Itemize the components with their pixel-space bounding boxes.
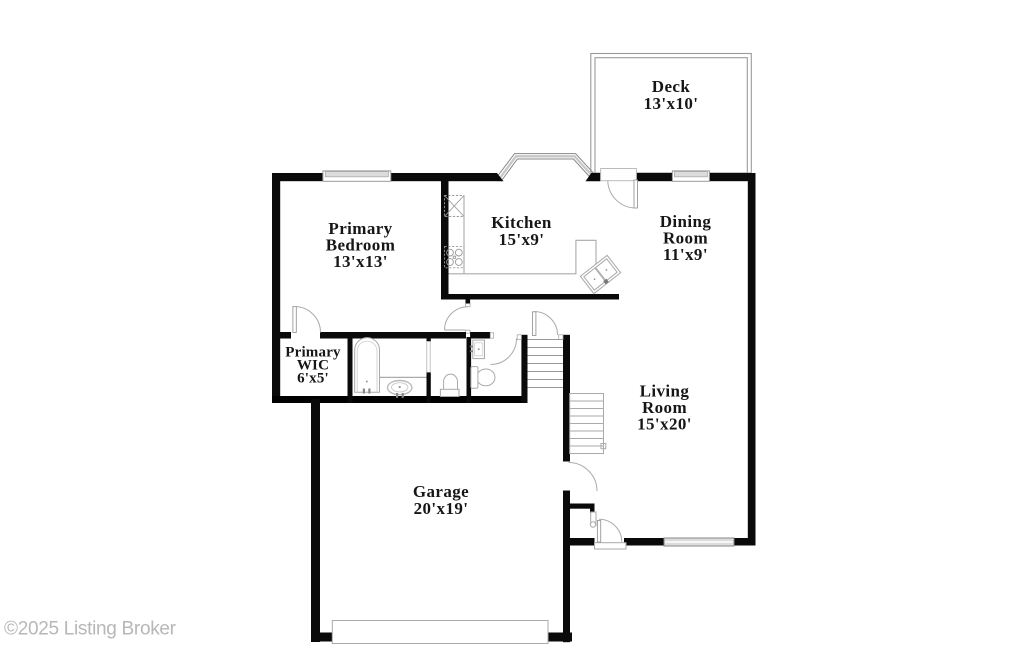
svg-text:15'x20': 15'x20' <box>637 415 692 434</box>
svg-text:11'x9': 11'x9' <box>663 245 708 264</box>
svg-text:©2025 Listing Broker: ©2025 Listing Broker <box>4 619 177 640</box>
svg-text:13'x13': 13'x13' <box>333 252 388 271</box>
svg-text:15'x9': 15'x9' <box>499 230 545 249</box>
svg-text:6'x5': 6'x5' <box>297 371 329 387</box>
svg-text:20'x19': 20'x19' <box>414 499 469 518</box>
svg-text:13'x10': 13'x10' <box>644 94 699 113</box>
